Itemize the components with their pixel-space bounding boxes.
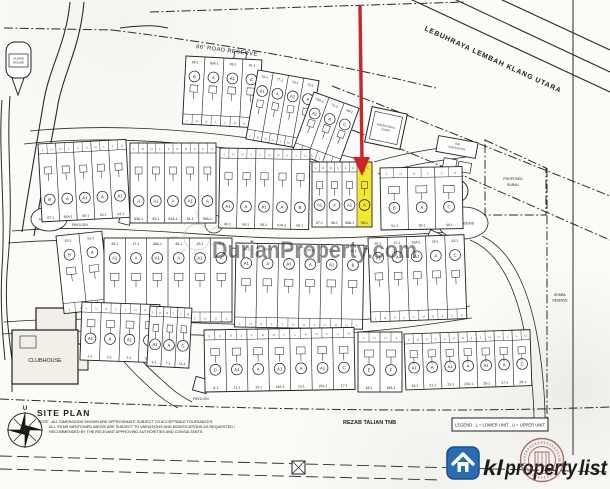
unit-type-letter: A1 [155, 256, 161, 261]
lot-strip-r4c: LUE18-1ULF18A-1 [358, 332, 402, 392]
lot-strip-r4d: LUA119-1ULA21-1LUA123-1ULA23A-1LUA125-1U… [404, 330, 532, 390]
unit-tick-label: U [273, 333, 275, 337]
lot-strips-layer: LUB85-1ULA83A-1LUA183-1ULA81-1LUA179-1UL… [38, 56, 532, 392]
unit-tick-label: U [304, 153, 306, 157]
unit-type-letter: A1 [88, 336, 94, 341]
logo-list: list [579, 457, 608, 480]
unit-type-letter: A1 [347, 203, 353, 208]
unit-type-letter: B [193, 74, 196, 79]
unit-number: 5-1 [151, 360, 156, 364]
unit-tick-label: U [150, 147, 152, 151]
brand-logo: kl property list [447, 439, 608, 482]
unit-type-letter: B [299, 205, 302, 210]
unit-number: 59-1 [242, 223, 249, 227]
unit-tick-label: U [105, 307, 107, 311]
unit-tick-label: U [426, 337, 428, 341]
unit-number: 83A-1 [210, 61, 219, 65]
unit-tick-label: U [461, 313, 463, 317]
unit-number: 65A-1 [64, 214, 73, 218]
lot-strip-r2c: LUA160-1ULA59-1LUA158-1ULA57A-1LUB56-1 [219, 148, 310, 230]
svg-text:CLUBHOUSE: CLUBHOUSE [28, 358, 62, 364]
highlight-arrow [353, 6, 370, 176]
unit-tick-label: U [262, 333, 264, 337]
unit-tick-label: U [432, 314, 434, 318]
unit-tick-label: U [185, 147, 187, 151]
unit-number: 61A-1 [168, 217, 177, 221]
title-block: SITE PLAN NOTE : ALL DIMENSIONS SHOWN AR… [37, 408, 236, 434]
note-line: ALL ITEMS MENTIONED ABOVE ARE SUBJECT TO… [49, 425, 236, 429]
unit-type-letter: A1 [448, 364, 454, 369]
unit-type-letter: A [108, 337, 111, 342]
unit-number: 2-1 [107, 355, 112, 359]
unit-type-letter: C [521, 361, 524, 366]
lot-strip-r2b: LUA63A-1ULA163-1LUA61A-1ULA161-1LUA59A-1 [130, 143, 216, 223]
unit-type-letter: D [214, 367, 217, 372]
unit-type-letter: A [250, 77, 253, 82]
unit-type-letter: C [453, 253, 456, 258]
unit-type-letter: B [393, 205, 396, 210]
unit-tick-label: U [219, 334, 221, 338]
watermark-text: DurianProperty.com [212, 237, 417, 264]
logo-kl: kl [483, 457, 504, 480]
unit-number: 50-1 [419, 223, 426, 227]
unit-type-letter: A [66, 196, 69, 201]
unit-tick-label: U [462, 336, 464, 340]
unit-number: 55A-1 [345, 221, 354, 225]
unit-number: 13A-1 [275, 385, 284, 389]
unit-tick-label: U [348, 331, 350, 335]
unit-type-letter: A [431, 365, 434, 370]
unit-number: 15A-1 [318, 384, 327, 388]
proposed-surau: PROPOSED SURAU [485, 140, 546, 215]
unit-tick-label: U [498, 335, 500, 339]
unit-tick-label: U [525, 334, 527, 338]
unit-tick-label: U [95, 306, 97, 310]
rezab-talian-label: REZAB TALIAN TNB [343, 420, 396, 426]
unit-number: 45-1 [175, 242, 182, 246]
unit-type-letter: A [212, 75, 215, 80]
unit-number: 45A-1 [153, 242, 162, 246]
unit-type-letter: A [135, 256, 138, 261]
unit-type-letter: A1 [153, 199, 159, 204]
lot-strip-r4a2: LUA15-1ULA7-1LUC7A-1 [147, 306, 192, 368]
unit-tick-label: U [86, 145, 88, 149]
unit-type-letter: A1 [188, 199, 194, 204]
bomba-reserve-label: RESERVE [552, 299, 567, 303]
unit-number: 13-1 [255, 385, 262, 389]
unit-tick-label: U [59, 147, 61, 151]
unit-tick-label: U [205, 120, 207, 124]
unit-tick-label: U [454, 171, 456, 175]
unit-tick-label: U [94, 145, 96, 149]
unit-tick-label: U [330, 166, 332, 170]
unit-number: 53-1 [64, 238, 71, 243]
unit-tick-label: U [453, 336, 455, 340]
unit-tick-label: U [159, 310, 161, 314]
unit-number: 63-1 [100, 213, 107, 217]
site-plan-title: SITE PLAN [37, 408, 90, 418]
unit-number: 7-1 [165, 361, 170, 365]
unit-tick-label: U [322, 166, 324, 170]
unit-type-letter: A1 [412, 365, 418, 370]
unit-number: 63-1 [152, 217, 159, 221]
unit-type-letter: E [368, 368, 371, 373]
unit-type-letter: A [167, 343, 170, 348]
unit-number: 58-1 [260, 223, 267, 227]
unit-tick-label: U [134, 308, 136, 312]
unit-type-letter: A1 [317, 203, 323, 208]
unit-type-letter: A [245, 204, 248, 209]
unit-tick-label: U [335, 323, 337, 327]
unit-tick-label: U [234, 121, 236, 125]
lot-strip-r2e: LUB51-1ULA50-1LUC49-1 [380, 167, 463, 230]
unit-tick-label: U [50, 147, 52, 151]
unit-number: 29-1 [519, 380, 526, 384]
unit-number: 49-1 [446, 223, 453, 227]
clubhouse: CLUBHOUSE [12, 308, 88, 384]
guard-house: GUARD HOUSE [6, 42, 31, 95]
unit-number: 25-1 [432, 240, 439, 244]
legend-label: LEGEND : L = LOWER UNIT , U = UPPER UNIT [455, 423, 545, 428]
unit-tick-label: U [268, 153, 270, 157]
unit-type-letter: C [181, 343, 184, 348]
unit-type-letter: A1 [234, 367, 240, 372]
unit-tick-label: U [422, 314, 424, 318]
unit-tick-label: U [232, 152, 234, 156]
unit-type-letter: A [420, 205, 423, 210]
site-plan-scan: GUARD HOUSE PAVILION PLAYGROUND PAVILION… [0, 0, 610, 489]
unit-tick-label: U [241, 152, 243, 156]
unit-type-letter: A [503, 362, 506, 367]
unit-number: 56-1 [296, 224, 303, 228]
unit-number: 57A-1 [277, 223, 286, 227]
unit-type-letter: A1 [117, 193, 123, 198]
unit-tick-label: U [384, 336, 386, 340]
svg-text:SURAU: SURAU [507, 183, 519, 187]
unit-number: 85-1 [192, 60, 199, 64]
unit-number: 56-1 [331, 221, 338, 225]
unit-number: 23-1 [451, 239, 458, 243]
unit-number: 11-1 [234, 386, 241, 390]
unit-number: 17-1 [341, 384, 348, 388]
lot-strip-r4b: LUD9-1ULA111-1LUA13-1ULA113A-1LUA15-1ULA… [204, 327, 355, 392]
pavilion-label: PAVILION [193, 397, 209, 401]
svg-text:PROPOSED: PROPOSED [503, 177, 523, 181]
legend: LEGEND : L = LOWER UNIT , U = UPPER UNIT [452, 418, 548, 431]
note-line: NOTE : ALL DIMENSIONS SHOWN ARE APPROXIM… [38, 420, 213, 424]
unit-number: 1-1 [87, 354, 92, 358]
unit-type-letter: A [363, 203, 366, 208]
unit-tick-label: U [394, 315, 396, 319]
unit-type-letter: A1 [483, 363, 489, 368]
bomba-reserve-label: BOMBA [554, 293, 566, 297]
unit-type-letter: B [48, 197, 51, 202]
unit-number: 25-1 [483, 381, 490, 385]
unit-tick-label: U [196, 119, 198, 123]
unit-tick-label: U [142, 147, 144, 151]
unit-number: 83-1 [230, 62, 237, 66]
unit-number: 67-1 [47, 215, 54, 219]
unit-tick-label: U [417, 337, 419, 341]
basketball-court: B.BASKETBALL COURT [365, 107, 408, 150]
unit-number: 63A-1 [134, 217, 143, 221]
unit-tick-label: U [277, 153, 279, 157]
unit-tick-label: U [187, 312, 189, 316]
unit-number: 57-1 [316, 221, 323, 225]
unit-type-letter: A [467, 363, 470, 368]
unit-type-letter: A1 [197, 256, 203, 261]
unit-tick-label: U [144, 308, 146, 312]
unit-tick-label: U [292, 322, 294, 326]
unit-tick-label: U [121, 144, 123, 148]
unit-number: 18A-1 [386, 386, 395, 390]
unit-tick-label: U [243, 121, 245, 125]
unit-type-letter: A1 [261, 204, 267, 209]
unit-type-letter: A1 [152, 342, 158, 347]
unit-type-letter: A [333, 203, 336, 208]
unit-type-letter: A [281, 205, 284, 210]
unit-number: 61-1 [117, 212, 124, 216]
unit-tick-label: U [346, 323, 348, 327]
unit-tick-label: U [176, 147, 178, 151]
lot-strip-r2a: LUB67-1ULA65A-1LUA165-1ULA63-1LUA161-1 [38, 139, 130, 221]
unit-number: 49-1 [111, 242, 118, 246]
unit-type-letter: F [390, 368, 393, 373]
unit-type-letter: A [300, 366, 303, 371]
unit-tick-label: U [316, 332, 318, 336]
unit-type-letter: A [172, 199, 175, 204]
unit-number: 9-1 [213, 386, 218, 390]
unit-number: 81-1 [249, 63, 256, 67]
unit-number: 3-1 [126, 356, 131, 360]
unit-tick-label: U [211, 147, 213, 151]
unit-type-letter: A1 [127, 337, 133, 342]
unit-number: 27-1 [501, 381, 508, 385]
unit-number: 59A-1 [203, 217, 212, 221]
unit-type-letter: A [206, 199, 209, 204]
unit-type-letter: A1 [277, 366, 283, 371]
unit-tick-label: U [166, 311, 168, 315]
unit-type-letter: C [342, 365, 345, 370]
unit-tick-label: U [215, 316, 217, 320]
unit-tick-label: U [489, 335, 491, 339]
unit-tick-label: U [303, 323, 305, 327]
unit-number: 23A-1 [464, 382, 473, 386]
unit-number: 47-1 [133, 242, 140, 246]
unit-number: 55-1 [361, 221, 368, 225]
unit-number: 60-1 [224, 222, 231, 226]
unit-type-letter: A [434, 253, 437, 258]
unit-number: 23-1 [447, 382, 454, 386]
unit-type-letter: A1 [320, 365, 326, 370]
unit-type-letter: A [137, 199, 140, 204]
unit-number: 43-1 [197, 242, 204, 246]
unit-number: 7A-1 [178, 362, 185, 366]
note-line: RECOMMENDED BY THE RELEVANT APPROVING AU… [49, 430, 203, 434]
unit-tick-label: U [230, 334, 232, 338]
unit-number: 19-1 [411, 384, 418, 388]
unit-tick-label: U [204, 316, 206, 320]
unit-type-letter: A1 [230, 76, 236, 81]
unit-number: 51-1 [391, 224, 398, 228]
unit-tick-label: U [400, 172, 402, 176]
unit-number: 65-1 [82, 214, 89, 218]
unit-tick-label: U [305, 332, 307, 336]
unit-tick-label: U [413, 171, 415, 175]
unit-tick-label: U [260, 322, 262, 326]
lot-strip-outline [219, 148, 310, 230]
unit-tick-label: U [352, 166, 354, 170]
unit-type-letter: A1 [82, 195, 88, 200]
unit-tick-label: U [373, 336, 375, 340]
pavilion-label: PAVILION [72, 223, 88, 227]
unit-tick-label: U [384, 316, 386, 320]
lot-strip-outline [130, 143, 216, 223]
unit-type-letter: A [257, 367, 260, 372]
north-label: U [23, 406, 27, 412]
tnb-substation: TNB SUB-STATION [436, 136, 478, 159]
unit-number: 51-1 [87, 236, 94, 241]
unit-number: 21-1 [429, 383, 436, 387]
unit-number: 15-1 [298, 384, 305, 388]
unit-type-letter: C [447, 204, 450, 209]
unit-type-letter: A1 [225, 204, 231, 209]
unit-type-letter: A [101, 194, 104, 199]
unit-type-letter: A1 [112, 256, 118, 261]
unit-number: 61-1 [187, 217, 194, 221]
unit-type-letter: A [177, 256, 180, 261]
lot-strip-r3a: LUB53-1ULA51-1 [56, 231, 110, 313]
unit-tick-label: U [250, 322, 252, 326]
unit-number: 18-1 [366, 386, 373, 390]
guard-house-label: HOUSE [13, 61, 24, 65]
